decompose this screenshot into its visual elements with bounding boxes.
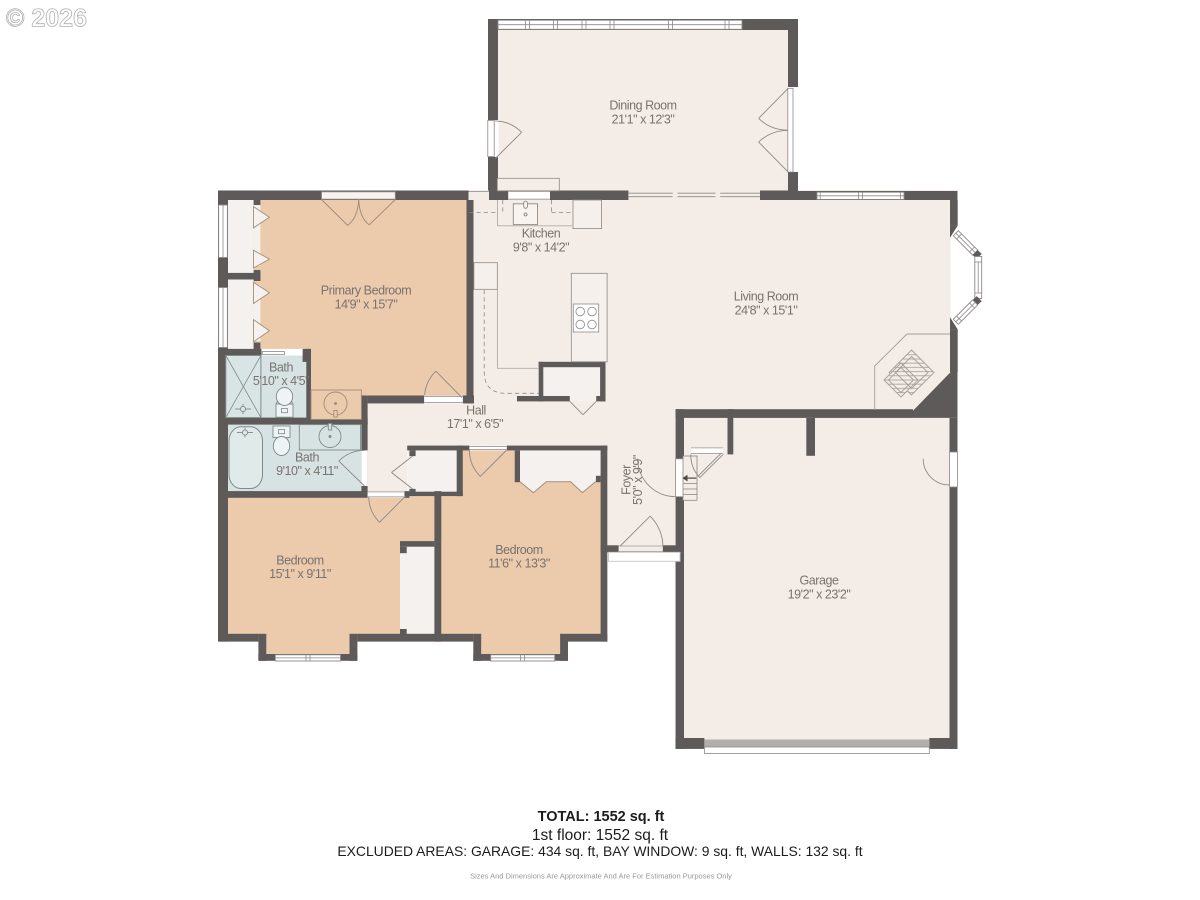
svg-text:15'1" x 9'11": 15'1" x 9'11" [269,567,331,581]
svg-text:© 2026: © 2026 [6,5,87,33]
svg-text:11'6" x 13'3": 11'6" x 13'3" [488,557,550,571]
svg-text:Dining Room: Dining Room [609,99,676,113]
svg-text:Bath: Bath [295,451,319,465]
svg-text:Bedroom: Bedroom [276,554,324,568]
svg-text:9'10" x 4'11": 9'10" x 4'11" [276,464,338,478]
svg-text:9'8" x 14'2": 9'8" x 14'2" [513,241,569,255]
svg-text:14'9" x 15'7": 14'9" x 15'7" [335,298,398,312]
svg-text:21'1" x 12'3": 21'1" x 12'3" [612,113,675,127]
svg-text:Primary Bedroom: Primary Bedroom [321,284,412,298]
svg-text:Kitchen: Kitchen [522,227,561,241]
svg-text:17'1" x 6'5": 17'1" x 6'5" [447,417,503,431]
svg-text:Bath: Bath [269,361,293,375]
svg-text:19'2" x 23'2": 19'2" x 23'2" [788,588,851,602]
svg-text:Living Room: Living Room [734,290,799,304]
svg-text:EXCLUDED AREAS: GARAGE: 434 sq: EXCLUDED AREAS: GARAGE: 434 sq. ft, BAY … [337,843,862,859]
svg-text:1st floor: 1552 sq. ft: 1st floor: 1552 sq. ft [532,827,669,844]
svg-text:Sizes And Dimensions Are Appro: Sizes And Dimensions Are Approximate And… [470,872,732,881]
svg-text:24'8" x 15'1": 24'8" x 15'1" [735,304,798,318]
svg-text:5'10" x 4'5": 5'10" x 4'5" [253,374,309,388]
svg-text:Garage: Garage [800,574,839,588]
svg-text:Bedroom: Bedroom [495,543,543,557]
svg-text:Hall: Hall [466,404,486,418]
svg-text:5'0" x 9'9": 5'0" x 9'9" [631,455,645,505]
svg-text:TOTAL: 1552 sq. ft: TOTAL: 1552 sq. ft [538,809,665,825]
